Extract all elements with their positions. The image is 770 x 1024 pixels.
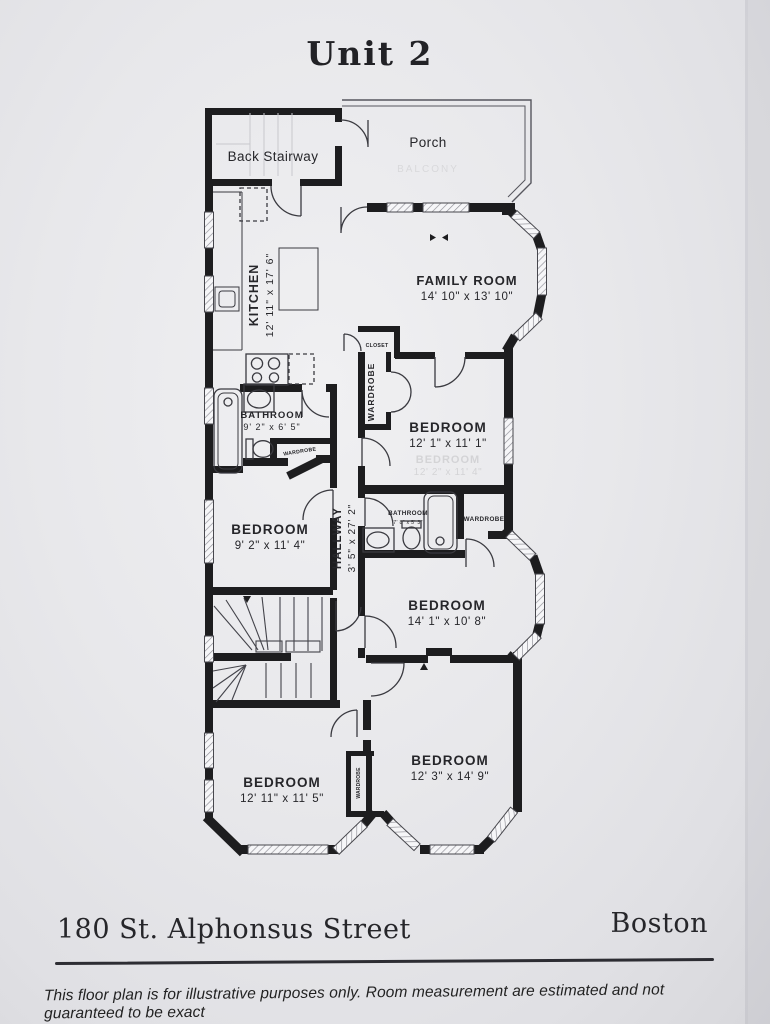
wardrobe-bath-middle-label: WARDROBE: [464, 516, 505, 523]
bedroom-right-middle-label: BEDROOM: [408, 598, 486, 613]
kitchen-counter: [213, 192, 242, 350]
hallway-dims: 3' 5" x 27' 2": [347, 504, 358, 573]
kitchen-label: KITCHEN: [247, 264, 261, 327]
ghost-bedroom-dims: 12' 2" x 11' 4": [414, 467, 483, 478]
ghost-bedroom-label: BEDROOM: [416, 454, 480, 466]
wardrobe-upper-label: WARDROBE: [366, 363, 376, 422]
bathroom-left-dims: 9' 2" x 6' 5": [243, 422, 300, 432]
bedroom-upper-dims: 12' 1" x 11' 1": [409, 438, 487, 450]
floor-plan-photo: { "title": "Unit 2", "plan": { "back_sta…: [0, 0, 770, 1024]
bedroom-right-lower-dims: 12' 3" x 14' 9": [411, 771, 489, 783]
wardrobe-lower-label: WARDROBE: [356, 767, 362, 799]
bedroom-left-lower-dims: 12' 11" x 11' 5": [240, 793, 324, 805]
floor-plan-drawing: Back Stairway Porch BALCONY KITCHEN 12' …: [0, 0, 770, 1024]
kitchen-dims: 12' 11" x 17' 6": [264, 253, 276, 337]
kitchen-island: [279, 248, 318, 310]
wardrobe-bath-left-label: WARDROBE: [283, 446, 317, 457]
stove: [246, 354, 288, 385]
bedroom-left-middle-label: BEDROOM: [231, 522, 309, 537]
toilet-left: [246, 439, 273, 459]
ghost-balcony-label: BALCONY: [397, 164, 459, 175]
bathroom-middle-dims: 7' 8" x 5' 3": [393, 520, 422, 526]
porch-outline: [342, 100, 531, 202]
bathroom-middle-label: BATHROOM: [388, 510, 428, 517]
footer-city: Boston: [611, 908, 708, 939]
bedroom-upper-label: BEDROOM: [409, 420, 487, 435]
bathtub-middle: [424, 492, 457, 553]
back-stairs-faint: [216, 113, 292, 176]
hallway-label: HALLWAY: [332, 507, 344, 569]
fixtures: [213, 188, 457, 553]
bedroom-right-middle-dims: 14' 1" x 10' 8": [408, 616, 486, 628]
footer-address: 180 St. Alphonsus Street: [57, 914, 411, 945]
bathroom-left-label: BATHROOM: [240, 410, 303, 421]
porch-label: Porch: [409, 135, 446, 150]
sink-middle: [363, 528, 394, 552]
closet-label: CLOSET: [366, 343, 389, 349]
back-stairway-label: Back Stairway: [228, 149, 319, 164]
bedroom-left-lower-label: BEDROOM: [243, 775, 321, 790]
walls: [205, 108, 522, 854]
family-room-dims: 14' 10" x 13' 10": [421, 291, 513, 303]
footer-disclaimer: This floor plan is for illustrative purp…: [44, 981, 744, 1024]
stairs: [213, 597, 322, 702]
family-room-label: FAMILY ROOM: [416, 273, 517, 288]
bedroom-left-middle-dims: 9' 2" x 11' 4": [235, 540, 306, 552]
bathtub-left: [214, 389, 242, 473]
bedroom-right-lower-label: BEDROOM: [411, 753, 489, 768]
